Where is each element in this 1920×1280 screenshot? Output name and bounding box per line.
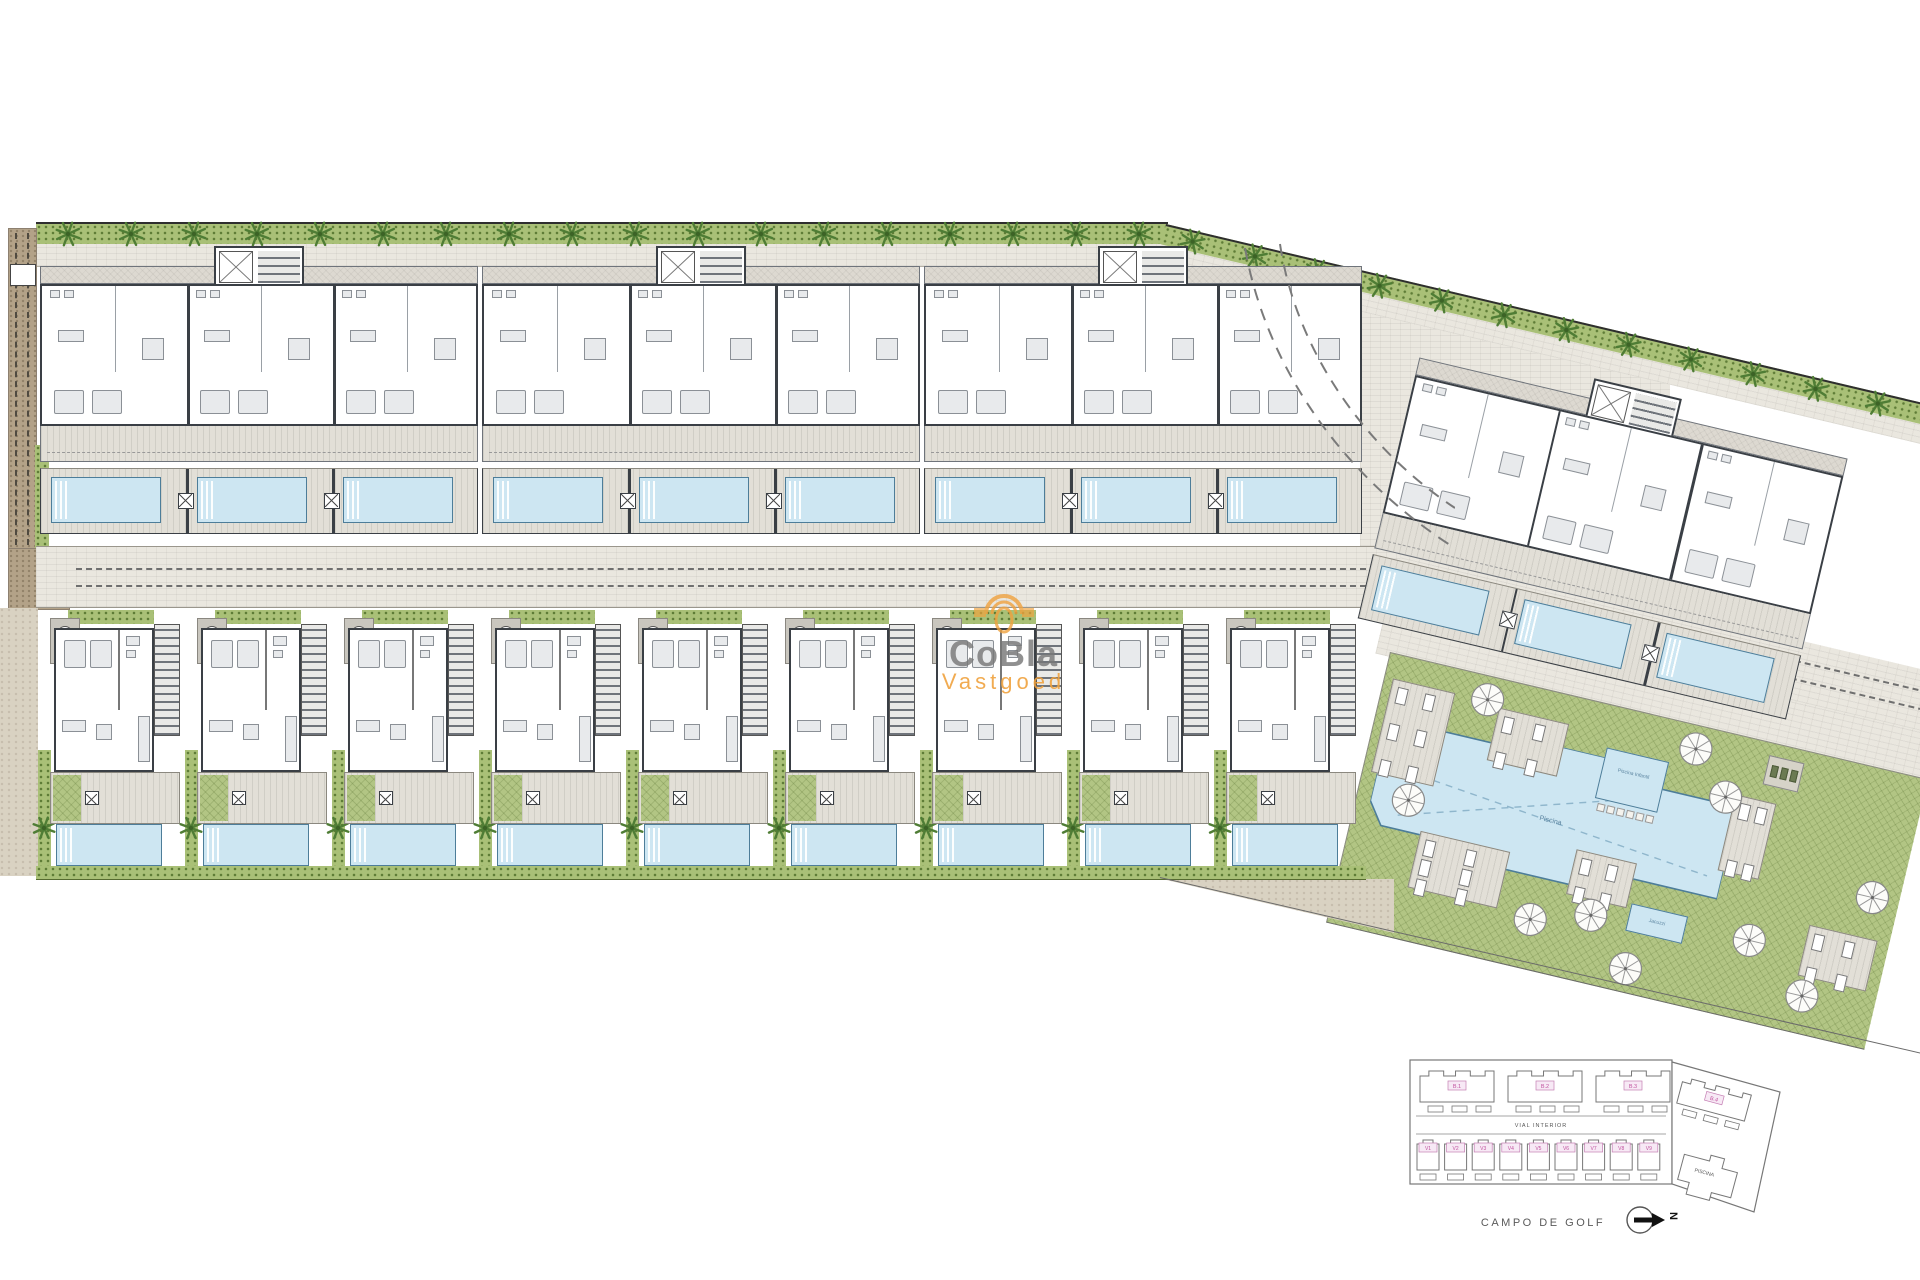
villa-plot <box>38 610 185 866</box>
villa-entry-hedge <box>950 610 1036 624</box>
sun-lounger <box>1458 868 1473 887</box>
bed-furniture <box>788 390 818 414</box>
villa-entry-hedge <box>656 610 742 624</box>
unit-partition <box>849 286 850 372</box>
table-furniture <box>1498 451 1524 477</box>
pool-steps <box>60 828 72 862</box>
bed-furniture <box>211 640 233 668</box>
bed-furniture <box>972 640 994 668</box>
villa-entry-hedge <box>509 610 595 624</box>
bed-furniture <box>505 640 527 668</box>
villa-stairs <box>889 624 915 736</box>
villa-pool <box>350 824 456 866</box>
bath-fixture <box>356 290 366 298</box>
villa-terrace <box>932 772 1062 824</box>
terrace-balcony-dash <box>489 452 913 453</box>
planter-x-icon <box>325 494 338 507</box>
bed-furniture <box>92 390 122 414</box>
bed-furniture <box>1542 515 1577 545</box>
planter-x-icon <box>1262 794 1273 805</box>
villa-living <box>642 710 742 772</box>
villa-living <box>348 710 448 772</box>
bath-fixture <box>1008 636 1022 646</box>
street-palm <box>810 220 838 248</box>
bath-fixture <box>506 290 516 298</box>
villa-partition <box>412 630 414 710</box>
pool-steps <box>789 481 801 519</box>
sofa-furniture <box>942 330 968 342</box>
building-private-pool <box>785 477 895 523</box>
bath-fixture <box>492 290 502 298</box>
villa-entry-hedge <box>1244 610 1330 624</box>
planter-x-icon <box>1115 794 1126 805</box>
villa-pool <box>644 824 750 866</box>
villa-living <box>936 710 1036 772</box>
stair-core <box>1098 246 1188 288</box>
street-palm <box>432 220 460 248</box>
bath-fixture <box>196 290 206 298</box>
bed-furniture <box>1084 390 1114 414</box>
villa-terrace <box>344 772 474 824</box>
sun-lounger <box>1417 859 1432 878</box>
unit-party-wall <box>333 286 336 424</box>
keyplan-unit-label: V6 <box>1563 1146 1569 1152</box>
street-palm <box>1736 357 1770 391</box>
unit-partition <box>261 286 262 372</box>
keyplan-road-label: VIAL INTERIOR <box>1515 1123 1568 1129</box>
terrace-garden-patch <box>53 775 81 821</box>
building-private-pool <box>1081 477 1191 523</box>
bed-furniture <box>1119 640 1141 668</box>
planter-x-icon <box>1500 611 1516 627</box>
pool-steps <box>648 828 660 862</box>
stair-core <box>656 246 746 288</box>
top-hedge-strip <box>36 222 1168 244</box>
street-palm <box>54 220 82 248</box>
bath-fixture <box>273 650 283 658</box>
planter-x-icon <box>821 794 832 805</box>
sofa-furniture <box>797 720 821 732</box>
pool-terrace-band <box>482 468 920 534</box>
bed-furniture <box>237 640 259 668</box>
pool-terrace-band <box>40 468 478 534</box>
building-private-pool <box>343 477 453 523</box>
sun-lounger <box>1463 849 1478 868</box>
sun-lounger <box>1841 940 1856 959</box>
bed-furniture <box>64 640 86 668</box>
parasol-icon <box>1569 894 1612 937</box>
table-furniture <box>876 338 898 360</box>
building-private-pool <box>493 477 603 523</box>
unit-partition <box>1468 394 1489 477</box>
bed-furniture <box>799 640 821 668</box>
bed-furniture <box>946 640 968 668</box>
sofa-furniture <box>356 720 380 732</box>
pool-steps <box>501 828 513 862</box>
villa-terrace <box>638 772 768 824</box>
parasol-icon <box>1674 727 1717 770</box>
street-palm <box>1861 387 1895 421</box>
elevator-shaft <box>661 251 695 283</box>
bath-fixture <box>1080 290 1090 298</box>
villa-bedrooms <box>495 628 595 712</box>
pool-steps <box>201 481 213 519</box>
pool-steps <box>207 828 219 862</box>
terrace-x-box <box>967 791 981 805</box>
pool-steps <box>942 828 954 862</box>
bath-fixture <box>420 636 434 646</box>
north-arrow: N <box>1627 1207 1679 1233</box>
bed-furniture <box>1122 390 1152 414</box>
table-furniture <box>96 724 112 740</box>
bed-furniture <box>1240 640 1262 668</box>
villa-bedrooms <box>936 628 1036 712</box>
kitchen-counter <box>1167 716 1179 762</box>
bath-fixture <box>1707 451 1719 461</box>
sofa-furniture <box>650 720 674 732</box>
villa-partition <box>853 630 855 710</box>
villa-stairs <box>301 624 327 736</box>
planter-x-box <box>324 493 340 509</box>
villa-bedrooms <box>348 628 448 712</box>
street-palm <box>936 220 964 248</box>
planter-x-icon <box>767 494 780 507</box>
planter-x-icon <box>621 494 634 507</box>
street-palm <box>1487 298 1521 332</box>
kitchen-counter <box>1314 716 1326 762</box>
terrace-garden-patch <box>1229 775 1257 821</box>
bath-fixture <box>567 650 577 658</box>
table-furniture <box>584 338 606 360</box>
bath-fixture <box>64 290 74 298</box>
bed-furniture <box>1721 558 1756 588</box>
bath-fixture <box>784 290 794 298</box>
villa-plot <box>773 610 920 866</box>
terrace-x-box <box>232 791 246 805</box>
planter-x-icon <box>527 794 538 805</box>
villa-plot <box>1214 610 1361 866</box>
sun-lounger <box>1753 807 1768 826</box>
keyplan-unit-label: B.2 <box>1541 1084 1549 1090</box>
villa-plot <box>479 610 626 866</box>
gym-equipment <box>1779 767 1789 780</box>
road-dash-1 <box>76 568 1366 570</box>
sofa-furniture <box>503 720 527 732</box>
keyplan-golf-label: CAMPO DE GOLF <box>1481 1217 1605 1229</box>
villa-bedrooms <box>54 628 154 712</box>
pool-steps <box>1089 828 1101 862</box>
elevator-x-icon <box>1592 385 1630 422</box>
bed-furniture <box>384 640 406 668</box>
bed-furniture <box>1579 524 1614 554</box>
table-furniture <box>288 338 310 360</box>
terrace-garden-patch <box>200 775 228 821</box>
bath-fixture <box>861 636 875 646</box>
building-private-pool <box>935 477 1045 523</box>
bath-fixture <box>420 650 430 658</box>
sun-lounger <box>1740 863 1755 882</box>
parasol-icon <box>1728 919 1771 962</box>
bath-fixture <box>1094 290 1104 298</box>
core-stairs <box>258 251 300 283</box>
unit-party-wall <box>187 286 190 424</box>
pool-steps <box>1376 570 1396 610</box>
street-palm <box>1799 372 1833 406</box>
bed-furniture <box>976 390 1006 414</box>
bed-furniture <box>496 390 526 414</box>
unit-partition <box>407 286 408 372</box>
unit-party-wall <box>775 286 778 424</box>
villa-terrace <box>1226 772 1356 824</box>
villa-plot <box>332 610 479 866</box>
sofa-furniture <box>1705 491 1733 509</box>
keyplan-unit-label: V1 <box>1425 1146 1431 1152</box>
road-dash-2 <box>76 585 1366 587</box>
bed-furniture <box>825 640 847 668</box>
villa-plot <box>920 610 1067 866</box>
sun-lounger <box>1604 864 1619 883</box>
villa-pool <box>938 824 1044 866</box>
bath-fixture <box>861 650 871 658</box>
bath-fixture <box>714 636 728 646</box>
villa-plot <box>1067 610 1214 866</box>
villa-bedrooms <box>789 628 889 712</box>
table-furniture <box>1026 338 1048 360</box>
table-furniture <box>390 724 406 740</box>
street-palm <box>558 220 586 248</box>
sofa-furniture <box>209 720 233 732</box>
bed-furniture <box>358 640 380 668</box>
bath-fixture <box>126 636 140 646</box>
bed-furniture <box>826 390 856 414</box>
street-palm <box>369 220 397 248</box>
elevator-x-icon <box>220 252 252 282</box>
keyplan-unit-label: B.3 <box>1629 1084 1637 1090</box>
table-furniture <box>434 338 456 360</box>
pool-steps <box>347 481 359 519</box>
sun-lounger <box>1454 887 1469 906</box>
sun-lounger <box>1811 933 1826 952</box>
building-private-pool <box>1656 633 1774 703</box>
bed-furniture <box>54 390 84 414</box>
villa-partition <box>1147 630 1149 710</box>
pool-steps <box>643 481 655 519</box>
bath-fixture <box>948 290 958 298</box>
terrace-garden-patch <box>494 775 522 821</box>
terrace-garden-patch <box>935 775 963 821</box>
sun-lounger <box>1422 839 1437 858</box>
bed-furniture <box>384 390 414 414</box>
sofa-furniture <box>204 330 230 342</box>
bed-furniture <box>678 640 700 668</box>
sun-lounger <box>1386 723 1401 742</box>
sun-lounger <box>1578 858 1593 877</box>
table-furniture <box>1125 724 1141 740</box>
villa-stairs <box>1183 624 1209 736</box>
villa-entry-hedge <box>68 610 154 624</box>
terrace-garden-patch <box>1082 775 1110 821</box>
keyplan-unit-label: B.1 <box>1453 1084 1461 1090</box>
villa-stairs <box>742 624 768 736</box>
planter-x-box <box>766 493 782 509</box>
street-palm <box>180 220 208 248</box>
bath-fixture <box>934 290 944 298</box>
bath-fixture <box>273 636 287 646</box>
bed-furniture <box>534 390 564 414</box>
table-furniture <box>1640 485 1666 511</box>
bed-furniture <box>652 640 674 668</box>
bath-fixture <box>1302 650 1312 658</box>
elevator-x-icon <box>1104 252 1136 282</box>
building-terrace-lower <box>40 426 478 462</box>
bed-furniture <box>346 390 376 414</box>
bath-fixture <box>567 636 581 646</box>
bath-fixture <box>126 650 136 658</box>
keyplan-unit-label: V9 <box>1646 1146 1652 1152</box>
villa-terrace <box>1079 772 1209 824</box>
sofa-furniture <box>350 330 376 342</box>
apartment-building <box>40 266 478 540</box>
planter-x-icon <box>968 794 979 805</box>
villa-entry-hedge <box>362 610 448 624</box>
unit-partition <box>703 286 704 372</box>
terrace-x-box <box>673 791 687 805</box>
parasol-icon <box>1851 876 1894 919</box>
sun-lounger <box>1413 729 1428 748</box>
building-private-pool <box>1371 565 1489 635</box>
villa-living <box>495 710 595 772</box>
villa-partition <box>559 630 561 710</box>
villa-terrace <box>785 772 915 824</box>
bed-furniture <box>1093 640 1115 668</box>
unit-party-wall <box>1071 286 1074 424</box>
bath-fixture <box>210 290 220 298</box>
street-palm <box>1125 220 1153 248</box>
villa-partition <box>265 630 267 710</box>
terrace-x-box <box>526 791 540 805</box>
street-palm <box>747 220 775 248</box>
bath-fixture <box>1578 420 1590 430</box>
villa-living <box>201 710 301 772</box>
sun-lounger <box>1413 878 1428 897</box>
villa-entry-hedge <box>215 610 301 624</box>
unit-partition <box>999 286 1000 372</box>
keyplan-unit-label: V8 <box>1618 1146 1624 1152</box>
villa-partition <box>118 630 120 710</box>
table-furniture <box>684 724 700 740</box>
villa-partition <box>706 630 708 710</box>
kitchen-counter <box>873 716 885 762</box>
table-furniture <box>142 338 164 360</box>
bath-fixture <box>50 290 60 298</box>
villa-pool <box>56 824 162 866</box>
street-palm <box>306 220 334 248</box>
villa-bedrooms <box>201 628 301 712</box>
table-furniture <box>1272 724 1288 740</box>
core-stairs <box>1142 251 1184 283</box>
building-private-pool <box>639 477 749 523</box>
jacuzzi-label: Jacuzzi <box>1629 913 1685 932</box>
sun-lounger <box>1724 859 1739 878</box>
planter-x-box <box>178 493 194 509</box>
keyplan-unit-label: V4 <box>1508 1146 1514 1152</box>
sofa-furniture <box>1562 458 1590 476</box>
table-furniture <box>831 724 847 740</box>
sofa-furniture <box>58 330 84 342</box>
villa-stairs <box>448 624 474 736</box>
sofa-furniture <box>1088 330 1114 342</box>
bed-furniture <box>642 390 672 414</box>
planter-x-icon <box>1063 494 1076 507</box>
pool-steps <box>1661 638 1681 678</box>
pool-steps <box>354 828 366 862</box>
sofa-furniture <box>944 720 968 732</box>
planter-x-icon <box>674 794 685 805</box>
sofa-furniture <box>1238 720 1262 732</box>
villa-terrace <box>197 772 327 824</box>
kitchen-counter <box>579 716 591 762</box>
table-furniture <box>243 724 259 740</box>
keyplan-unit-label: V7 <box>1591 1146 1597 1152</box>
elevator-x-icon <box>662 252 694 282</box>
building-private-pool <box>197 477 307 523</box>
terrace-balcony-dash <box>47 452 471 453</box>
villa-partition <box>1294 630 1296 710</box>
villa-pool <box>1232 824 1338 866</box>
bed-furniture <box>938 390 968 414</box>
table-furniture <box>1783 519 1809 545</box>
villa-terrace <box>491 772 621 824</box>
terrace-garden-patch <box>347 775 375 821</box>
unit-partition <box>557 286 558 372</box>
pool-steps <box>939 481 951 519</box>
terrace-x-box <box>820 791 834 805</box>
core-stairs <box>700 251 742 283</box>
street-palm <box>684 220 712 248</box>
bath-fixture <box>1564 417 1576 427</box>
villa-plot <box>185 610 332 866</box>
planter-x-box <box>1641 644 1660 663</box>
kitchen-counter <box>285 716 297 762</box>
gym-equipment <box>1789 770 1799 783</box>
sofa-furniture <box>1091 720 1115 732</box>
bath-fixture <box>714 650 724 658</box>
planter-x-icon <box>380 794 391 805</box>
pool-steps <box>55 481 67 519</box>
villa-bedrooms <box>642 628 742 712</box>
pool-steps <box>497 481 509 519</box>
street-palm <box>621 220 649 248</box>
villa-pool <box>1085 824 1191 866</box>
keyplan-diagram: B.1B.2B.3V1V2V3V4V5V6V7V8V9B.4 VIAL INTE… <box>1408 1052 1798 1247</box>
kids-pool-label: Piscina Infantil <box>1603 764 1665 784</box>
sofa-furniture <box>62 720 86 732</box>
apartment-building <box>482 266 920 540</box>
unit-partition <box>115 286 116 372</box>
villa-pool <box>203 824 309 866</box>
sofa-furniture <box>646 330 672 342</box>
villa-bedrooms <box>1230 628 1330 712</box>
sun-lounger <box>1422 693 1437 712</box>
table-furniture <box>730 338 752 360</box>
villa-plot <box>626 610 773 866</box>
pool-steps <box>1519 604 1539 644</box>
bath-fixture <box>652 290 662 298</box>
left-gate-box <box>10 264 36 286</box>
unit-party-wall <box>629 286 632 424</box>
gym-equipment <box>1770 765 1780 778</box>
street-palm <box>1550 313 1584 347</box>
